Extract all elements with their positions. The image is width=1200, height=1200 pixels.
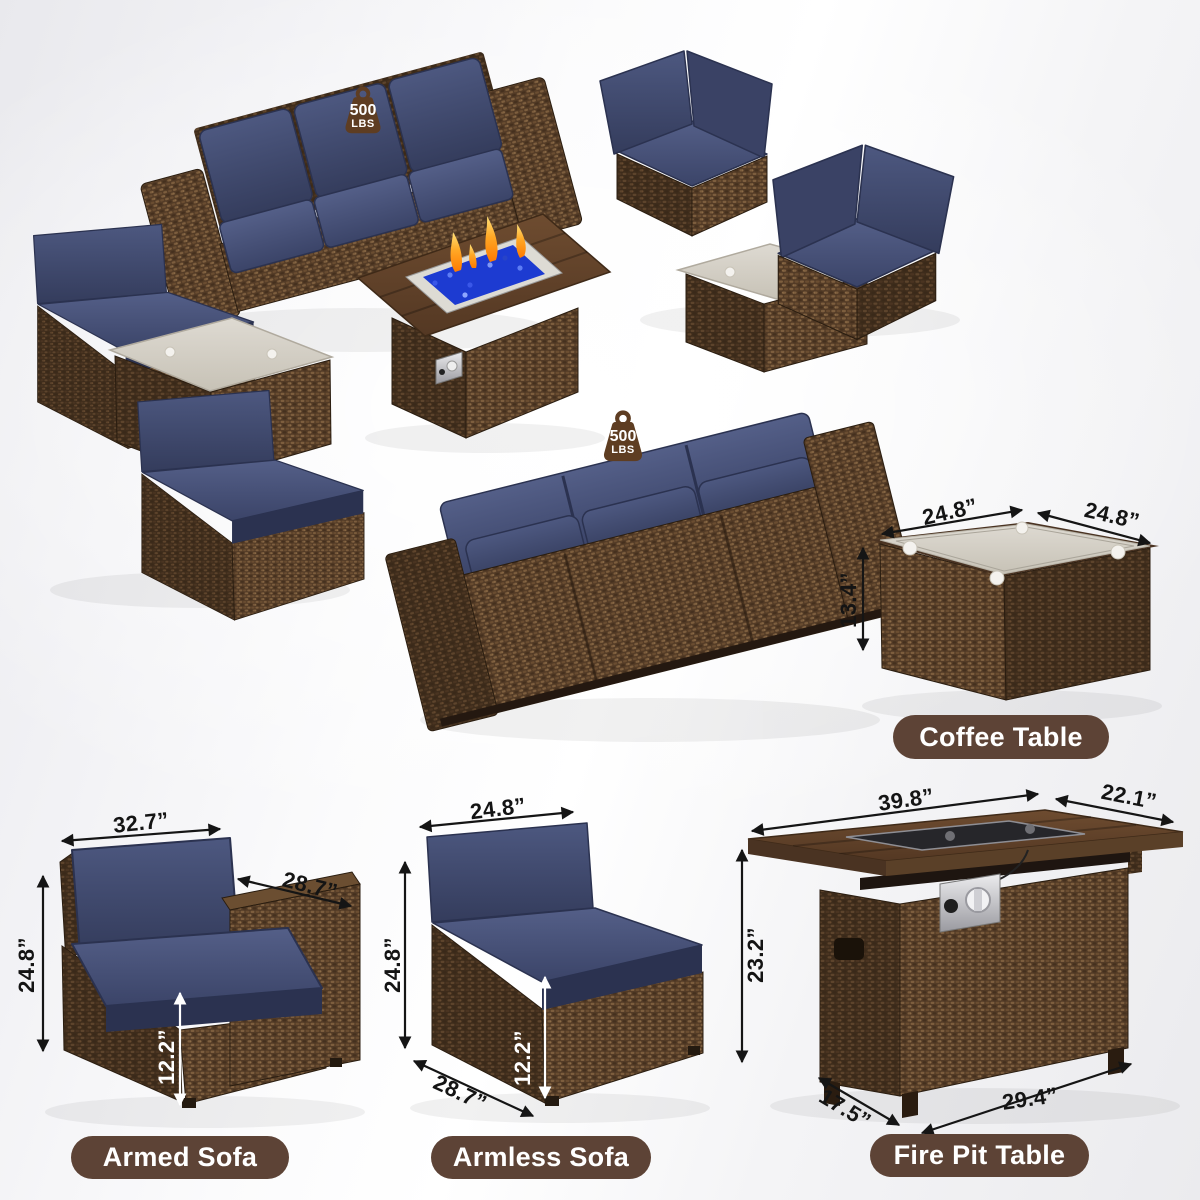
coffee-table-label: Coffee Table: [893, 715, 1109, 759]
dim-armless-height: 24.8”: [380, 937, 406, 993]
dim-armed-height: 24.8”: [14, 937, 40, 993]
fire-pit-diagram: [748, 810, 1183, 1118]
weight-capacity-badge: 500 LBS: [340, 84, 386, 138]
armed-sofa-label: Armed Sofa: [71, 1136, 289, 1179]
fire-pit-table-label: Fire Pit Table: [870, 1134, 1089, 1177]
dim-armless-seat-height: 12.2”: [510, 1030, 536, 1086]
dim-coffee-height: 13.4”: [836, 572, 862, 628]
weight-capacity-badge: 500 LBS: [598, 408, 648, 466]
weight-unit: LBS: [598, 445, 648, 456]
coffee-table-diagram: [871, 522, 1159, 700]
weight-unit: LBS: [340, 119, 386, 130]
product-infographic: 500 LBS 500 LBS 24.8” 24.8” 13.4” 32.7” …: [0, 0, 1200, 1200]
dim-firepit-height: 23.2”: [743, 927, 769, 983]
armless-sofa-label: Armless Sofa: [431, 1136, 651, 1179]
furniture-illustration: [0, 0, 1200, 1200]
weight-value: 500: [598, 429, 648, 445]
dim-armed-seat-height: 12.2”: [154, 1029, 180, 1085]
armless-sofa-diagram: [427, 823, 703, 1106]
